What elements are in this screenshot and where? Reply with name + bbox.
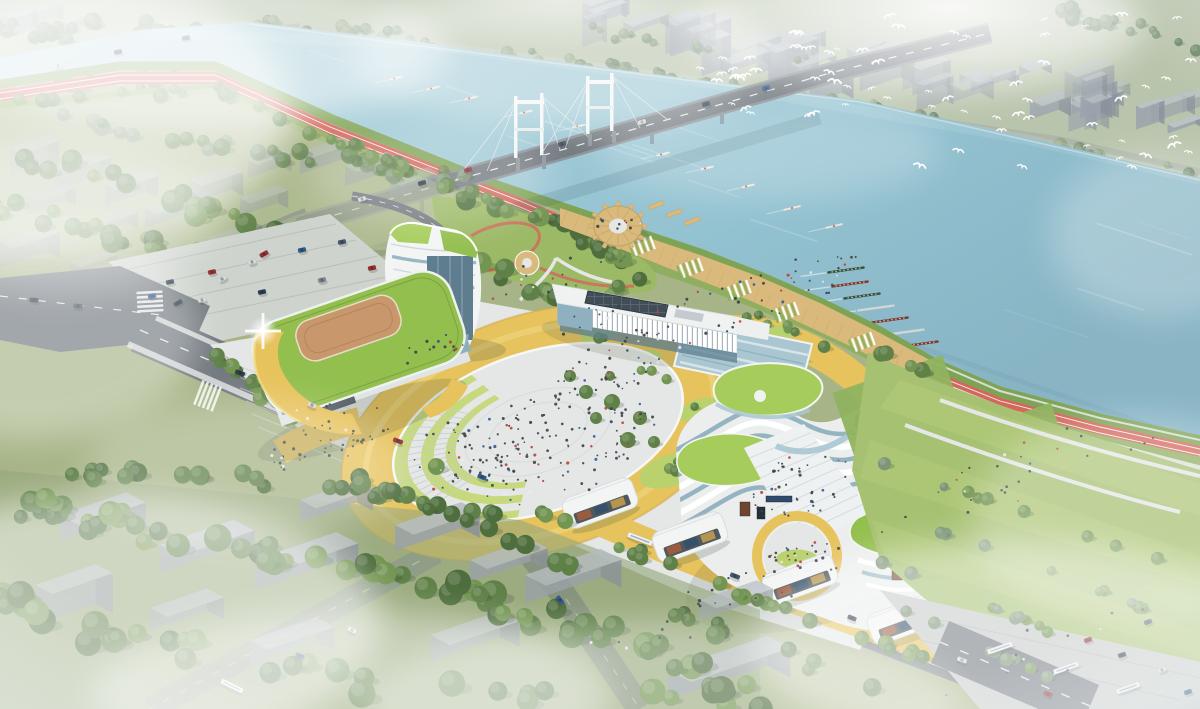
aerial-rendering-canvas (0, 0, 1200, 709)
vignette (0, 0, 1200, 709)
fx (0, 0, 1200, 709)
scene-svg (0, 0, 1200, 709)
